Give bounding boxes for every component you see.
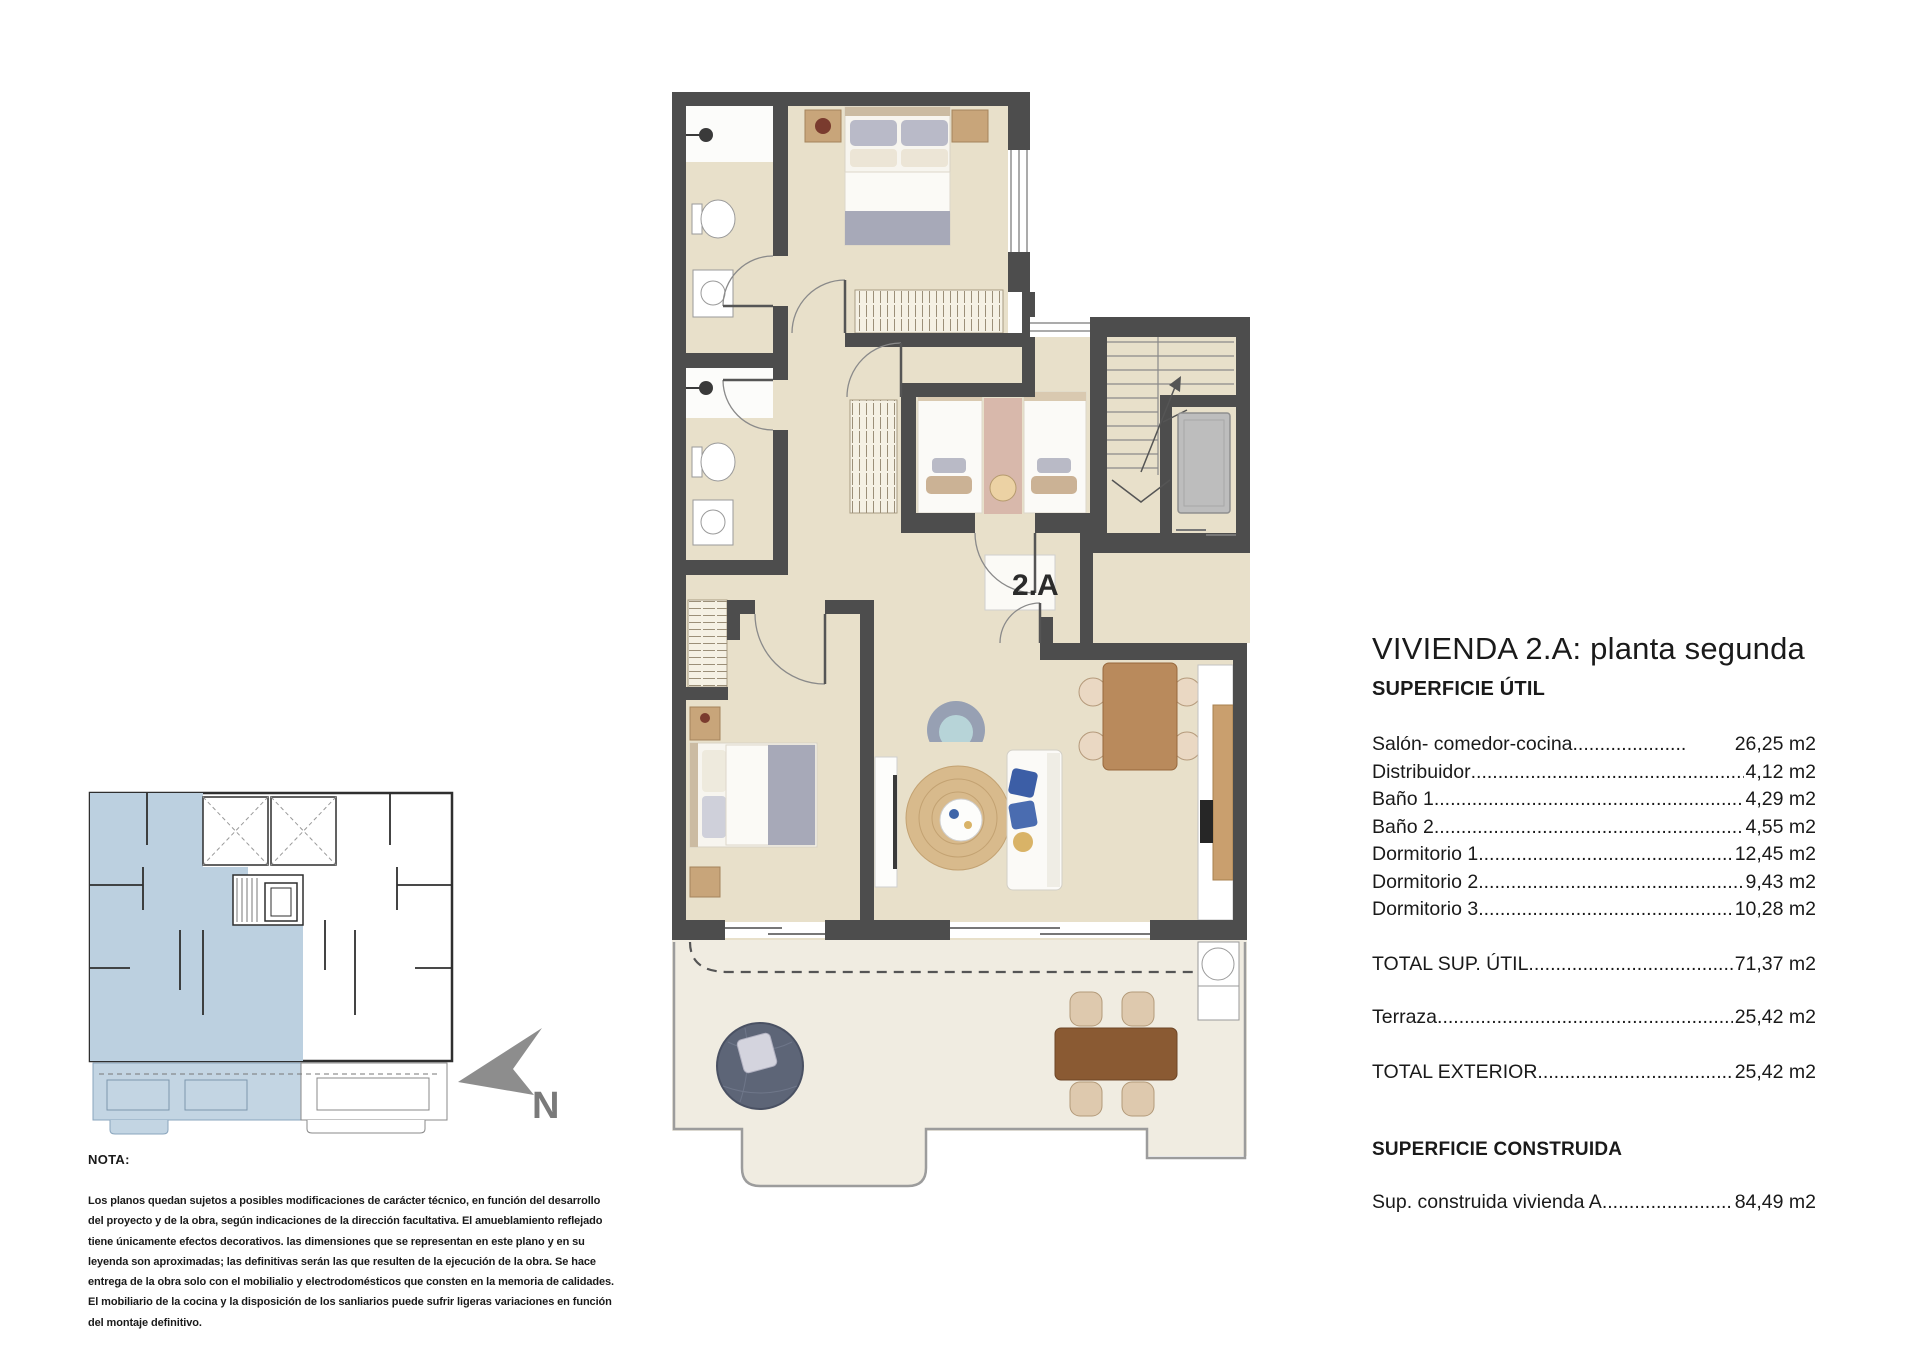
area-row: Salón- comedor-cocina26,25 m2 <box>1372 731 1816 759</box>
area-value: 25,42 m2 <box>1733 1004 1816 1032</box>
total-exterior-row: TOTAL EXTERIOR25,42 m2 <box>1372 1059 1816 1087</box>
area-row: Baño 24,55 m2 <box>1372 814 1816 842</box>
north-arrow-icon: N <box>450 1022 580 1122</box>
area-value: 4,29 m2 <box>1744 786 1816 814</box>
shower-icon <box>699 128 713 142</box>
areas-panel: VIVIENDA 2.A: planta segunda SUPERFICIE … <box>1372 628 1834 1217</box>
leader-dots <box>1573 731 1685 759</box>
leader-dots <box>1434 786 1744 814</box>
area-label: Terraza <box>1372 1004 1437 1032</box>
superficie-util-heading: SUPERFICIE ÚTIL <box>1372 678 1834 701</box>
note-line: tiene únicamente efectos decorativos. la… <box>88 1232 558 1252</box>
area-label: Baño 2 <box>1372 814 1434 842</box>
area-label: Sup. construida vivienda A <box>1372 1189 1602 1217</box>
superficie-construida-heading: SUPERFICIE CONSTRUIDA <box>1372 1139 1834 1161</box>
keyplan-terraces <box>93 1063 447 1134</box>
leader-dots <box>1478 896 1732 924</box>
area-value: 10,28 m2 <box>1733 896 1816 924</box>
area-label: TOTAL EXTERIOR <box>1372 1059 1537 1087</box>
area-row: Dormitorio 112,45 m2 <box>1372 841 1816 869</box>
page-title: VIVIENDA 2.A: planta segunda <box>1372 628 1834 670</box>
area-row: Baño 14,29 m2 <box>1372 786 1816 814</box>
area-value: 71,37 m2 <box>1733 951 1816 979</box>
note-line: entrega de la obra solo con el mobiliali… <box>88 1272 558 1292</box>
area-label: Dormitorio 1 <box>1372 841 1478 869</box>
leader-dots <box>1437 1004 1733 1032</box>
area-value: 26,25 m2 <box>1733 731 1816 759</box>
note-line: Los planos quedan sujetos a posibles mod… <box>88 1191 558 1211</box>
leader-dots <box>1478 841 1732 869</box>
page: 2.A <box>0 0 1920 1357</box>
area-label: Salón- comedor-cocina <box>1372 731 1573 759</box>
area-value: 4,55 m2 <box>1744 814 1816 842</box>
note-block: NOTA: Los planos quedan sujetos a posibl… <box>88 1152 558 1333</box>
note-line: del proyecto y de la obra, según indicac… <box>88 1211 558 1231</box>
elevator-car <box>1178 413 1230 513</box>
key-plan <box>85 790 460 1138</box>
floor-plan: 2.A <box>660 80 1260 1230</box>
area-label: Dormitorio 2 <box>1372 869 1478 897</box>
terraza-row: Terraza25,42 m2 <box>1372 1004 1816 1032</box>
area-label: Distribuidor <box>1372 759 1471 787</box>
area-value: 84,49 m2 <box>1733 1189 1816 1217</box>
area-row: Distribuidor4,12 m2 <box>1372 759 1816 787</box>
area-value: 4,12 m2 <box>1744 759 1816 787</box>
superficie-construida-rows: Sup. construida vivienda A84,49 m2 <box>1372 1189 1834 1217</box>
note-line: del montaje definitivo. <box>88 1313 558 1333</box>
dining-table <box>1103 663 1177 770</box>
superficie-util-rows: Salón- comedor-cocina26,25 m2 Distribuid… <box>1372 731 1834 1086</box>
leader-dots <box>1434 814 1744 842</box>
note-line: El mobiliario de la cocina y la disposic… <box>88 1292 558 1312</box>
leader-dots <box>1471 759 1744 787</box>
area-label: TOTAL SUP. ÚTIL <box>1372 951 1528 979</box>
leader-dots <box>1602 1189 1733 1217</box>
shower-icon <box>699 381 713 395</box>
core <box>233 875 303 925</box>
total-sup-util-row: TOTAL SUP. ÚTIL71,37 m2 <box>1372 951 1816 979</box>
unit-label: 2.A <box>1012 569 1059 602</box>
note-line: leyenda son aproximadas; las definitivas… <box>88 1252 558 1272</box>
coffee-table <box>940 799 982 841</box>
area-row: Dormitorio 29,43 m2 <box>1372 869 1816 897</box>
tv <box>893 775 897 869</box>
leader-dots <box>1478 869 1743 897</box>
area-value: 9,43 m2 <box>1744 869 1816 897</box>
area-value: 12,45 m2 <box>1733 841 1816 869</box>
kitchen-furniture <box>1198 665 1233 920</box>
leader-dots <box>1528 951 1732 979</box>
slider-window <box>725 922 825 938</box>
cooktop <box>1200 800 1213 843</box>
area-label: Baño 1 <box>1372 786 1434 814</box>
area-row: Dormitorio 310,28 m2 <box>1372 896 1816 924</box>
outdoor-table <box>1055 1028 1177 1080</box>
note-heading: NOTA: <box>88 1152 558 1167</box>
leader-dots <box>1537 1059 1732 1087</box>
area-label: Dormitorio 3 <box>1372 896 1478 924</box>
sup-construida-row: Sup. construida vivienda A84,49 m2 <box>1372 1189 1816 1217</box>
area-value: 25,42 m2 <box>1733 1059 1816 1087</box>
north-label: N <box>532 1085 559 1122</box>
slider-window <box>950 922 1150 938</box>
